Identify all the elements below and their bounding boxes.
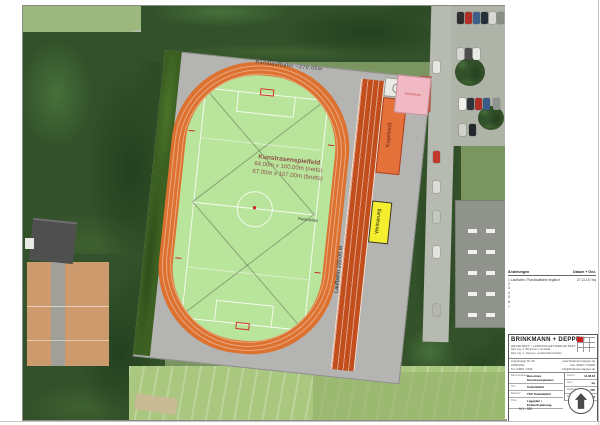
sheet-border — [598, 0, 599, 425]
parked-car — [475, 98, 482, 110]
parked-car — [433, 211, 440, 223]
goal-mark — [260, 88, 275, 96]
scale-note: M 1 : 500 — [519, 407, 532, 411]
parked-car — [433, 181, 440, 193]
project-label: Plan: — [511, 399, 527, 407]
revision-header: Änderungen Datum + Gez. — [508, 270, 596, 276]
dimension-tick — [189, 130, 195, 132]
court-line — [27, 340, 109, 341]
industrial-building — [455, 200, 507, 328]
meta-label: Gez.: — [567, 381, 573, 385]
court-line — [27, 306, 109, 307]
aerial-photo: Rundlaufbahn ~270.00m — [22, 5, 507, 421]
meta-row: Gez.: bq — [565, 380, 597, 387]
contact-line: info@brinkmann-deppen.de — [562, 368, 595, 372]
logo-red-square — [577, 337, 583, 342]
revision-table: Änderungen Datum + Gez. 1 Laufbahn / Run… — [508, 270, 596, 309]
meta-value: 14.08.18 — [584, 374, 595, 378]
plan-sheet: Rundlaufbahn ~270.00m — [0, 0, 600, 425]
revision-header-right: Datum + Gez. — [573, 270, 596, 274]
contact-web: www.brinkmann-deppen.de Fax: 04522 / 744… — [562, 360, 595, 371]
firm-logo — [577, 337, 595, 352]
parked-car — [465, 48, 472, 60]
parked-car — [473, 12, 480, 24]
meta-value: bq — [592, 381, 595, 385]
contact-address: Lütjenburger Str. 60 24306 Plön Tel.: 04… — [511, 360, 535, 371]
house-roof — [29, 218, 77, 264]
clubhouse-building: Vereinsheim — [394, 74, 432, 115]
revision-row: 1 Laufbahn / Rundlaufbahn ergänzt 27.11.… — [508, 278, 596, 282]
parked-car — [433, 151, 440, 163]
skylight-row — [468, 229, 477, 325]
parking-tree — [478, 106, 504, 130]
center-mark — [253, 206, 256, 209]
tennis-path — [51, 262, 65, 366]
firm-section: BRINKMANN + DEPPEN ARCHITEKT / LANDSCHAF… — [509, 335, 597, 359]
title-block: BRINKMANN + DEPPEN ARCHITEKT / LANDSCHAF… — [508, 334, 598, 422]
parked-car — [459, 98, 466, 110]
parking-tree — [455, 58, 485, 86]
north-arrow-symbol — [568, 388, 594, 414]
project-row: Ort: Todenbüttel — [509, 384, 563, 391]
revision-date: 27.11.19 / bq — [577, 278, 596, 282]
project-row: Bauvorhaben: Bau eines Kunstrasenplatzes — [509, 373, 563, 384]
parked-car — [433, 61, 440, 73]
meta-row: Datum: 14.08.18 — [565, 373, 597, 380]
revision-header-left: Änderungen — [508, 270, 529, 274]
contact-line: Tel.: 04522 / 2344 — [511, 368, 535, 372]
parked-car — [483, 98, 490, 110]
project-value: Lageplan / Entwurfsplanung — [527, 399, 561, 407]
parked-car — [457, 12, 464, 24]
project-value: Todenbüttel — [527, 385, 544, 389]
meta-label: Datum: — [567, 374, 575, 378]
project-label: Bauvorhaben: — [511, 374, 527, 382]
parked-car — [433, 304, 440, 316]
clubhouse-label: Vereinsheim — [404, 93, 421, 98]
parked-car — [481, 12, 488, 24]
north-arrow-icon — [573, 392, 589, 410]
parked-car — [473, 48, 480, 60]
parked-car — [493, 98, 500, 110]
skylight-row — [486, 229, 495, 325]
parked-car — [465, 12, 472, 24]
goal-mark — [235, 322, 250, 330]
firm-partner: Dipl.-Ing. C. Deppen, Landschaftsarchite… — [511, 352, 595, 355]
revision-num: 1 — [508, 278, 510, 282]
parked-car — [459, 124, 466, 136]
parked-car — [469, 124, 476, 136]
contact-section: Lütjenburger Str. 60 24306 Plön Tel.: 04… — [509, 359, 597, 373]
project-section: Bauvorhaben: Bau eines Kunstrasenplatzes… — [509, 373, 597, 417]
sports-facility-plan: Rundlaufbahn ~270.00m — [132, 50, 433, 389]
parked-car — [433, 246, 440, 258]
revision-text: Laufbahn / Rundlaufbahn ergänzt — [511, 278, 560, 282]
parked-car — [489, 12, 496, 24]
tennis-courts — [27, 262, 109, 366]
revision-row: 7 — [508, 305, 596, 310]
house-annex — [25, 238, 34, 249]
parked-car — [457, 48, 464, 60]
project-label: Bauherr: — [511, 392, 527, 396]
dimension-tick — [315, 272, 321, 274]
project-row: Plan: Lageplan / Entwurfsplanung — [509, 398, 563, 409]
project-label: Ort: — [511, 385, 527, 389]
project-row: Bauherr: TSV Todenbüttel — [509, 391, 563, 398]
parked-car — [467, 98, 474, 110]
dimension-tick — [175, 257, 181, 259]
project-value: Bau eines Kunstrasenplatzes — [527, 374, 561, 382]
sheet-border — [0, 421, 600, 422]
project-value: TSV Todenbüttel — [527, 392, 551, 396]
parked-car — [497, 12, 504, 24]
dimension-tick — [328, 145, 334, 147]
